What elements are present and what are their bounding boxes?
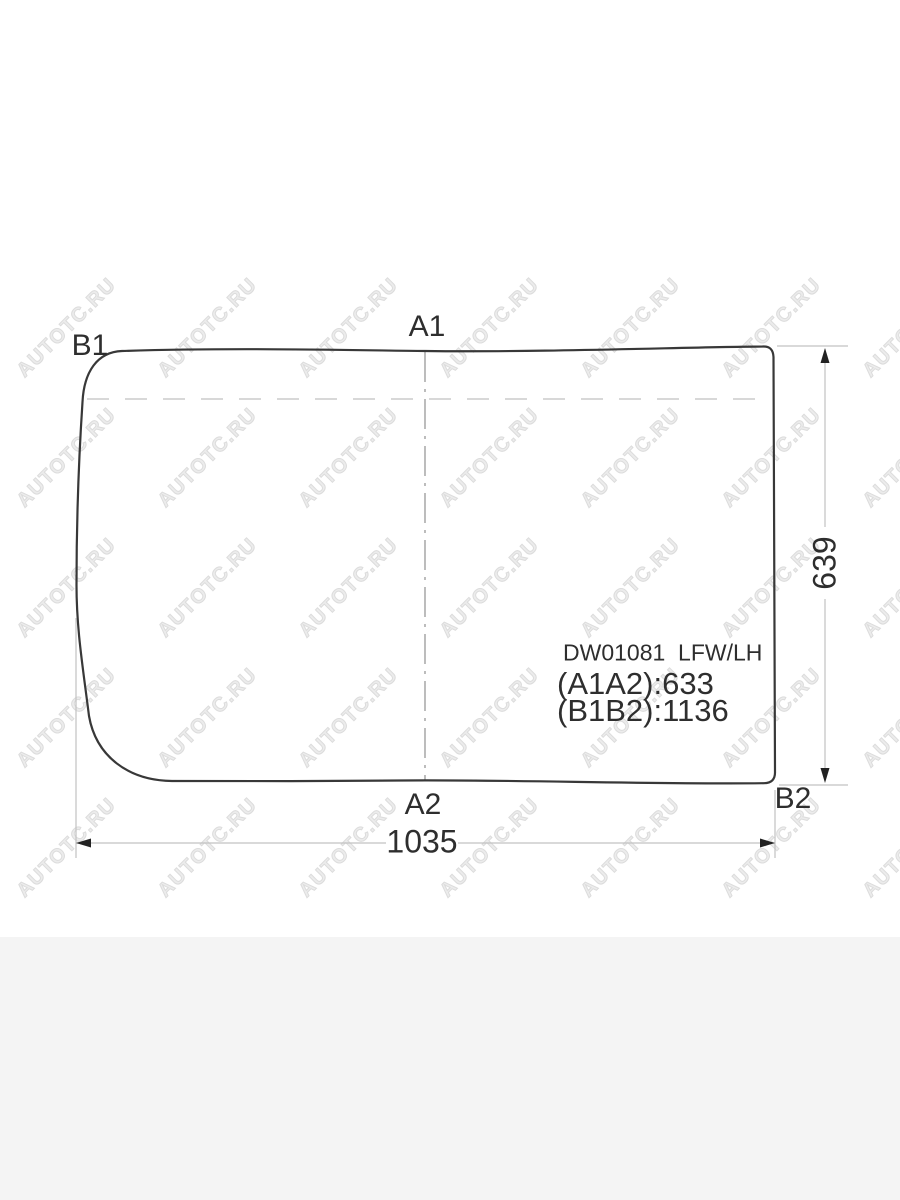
arrowhead-left-icon [76, 839, 91, 848]
arrowhead-right-icon [760, 839, 775, 848]
spec-b1b2: (B1B2):1136 [557, 693, 729, 729]
label-b1: B1 [72, 329, 109, 363]
part-code: DW01081 LFW/LH [563, 640, 762, 667]
arrowhead-down-icon [821, 768, 830, 783]
label-a2: A2 [405, 788, 442, 822]
width-dimension-value: 1035 [386, 824, 457, 861]
arrowhead-up-icon [821, 348, 830, 363]
label-a1: A1 [409, 310, 446, 344]
label-b2: B2 [775, 782, 812, 816]
glass-diagram-page: AUTOTC.RUAUTOTC.RUAUTOTC.RUAUTOTC.RUAUTO… [0, 0, 900, 1200]
bottom-gray-band [0, 937, 900, 1200]
windshield-diagram [0, 0, 900, 937]
height-dimension-value: 639 [807, 536, 844, 589]
